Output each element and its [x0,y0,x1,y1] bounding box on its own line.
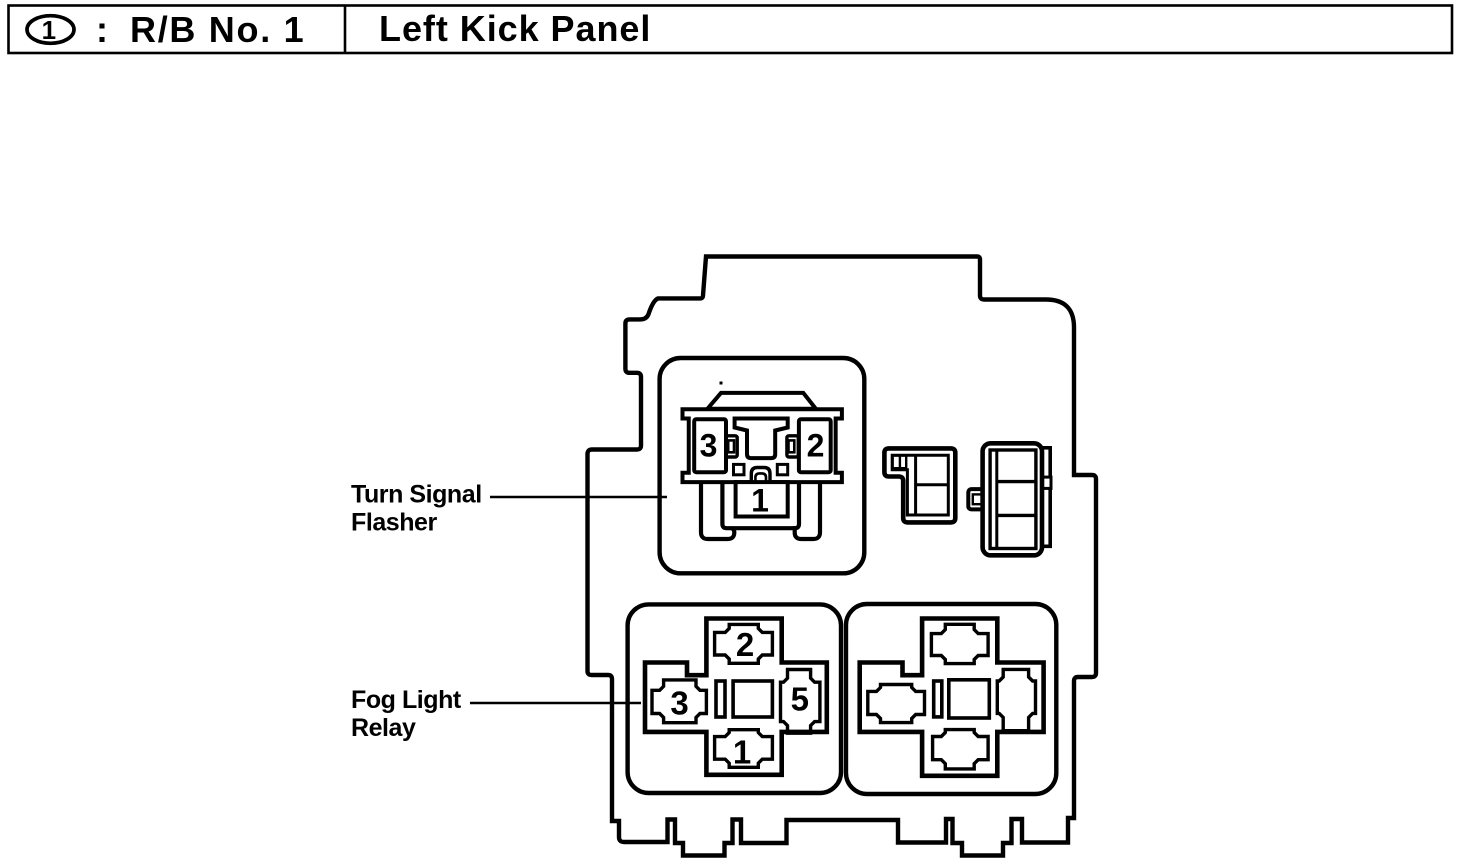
svg-text:3: 3 [700,428,718,464]
svg-text:1: 1 [42,15,56,45]
svg-text:Turn Signal: Turn Signal [351,481,482,509]
svg-text::: : [96,9,108,50]
svg-text:Flasher: Flasher [351,509,437,537]
svg-text:Relay: Relay [351,714,416,742]
svg-text:R/B No. 1: R/B No. 1 [130,9,305,50]
svg-text:1: 1 [751,483,769,519]
svg-text:1: 1 [733,734,751,771]
svg-text:Fog Light: Fog Light [351,686,462,714]
svg-text:2: 2 [736,626,754,663]
svg-text:3: 3 [670,684,688,721]
svg-text:5: 5 [791,681,809,718]
svg-text:Left Kick Panel: Left Kick Panel [379,8,651,49]
svg-text:2: 2 [807,428,825,464]
